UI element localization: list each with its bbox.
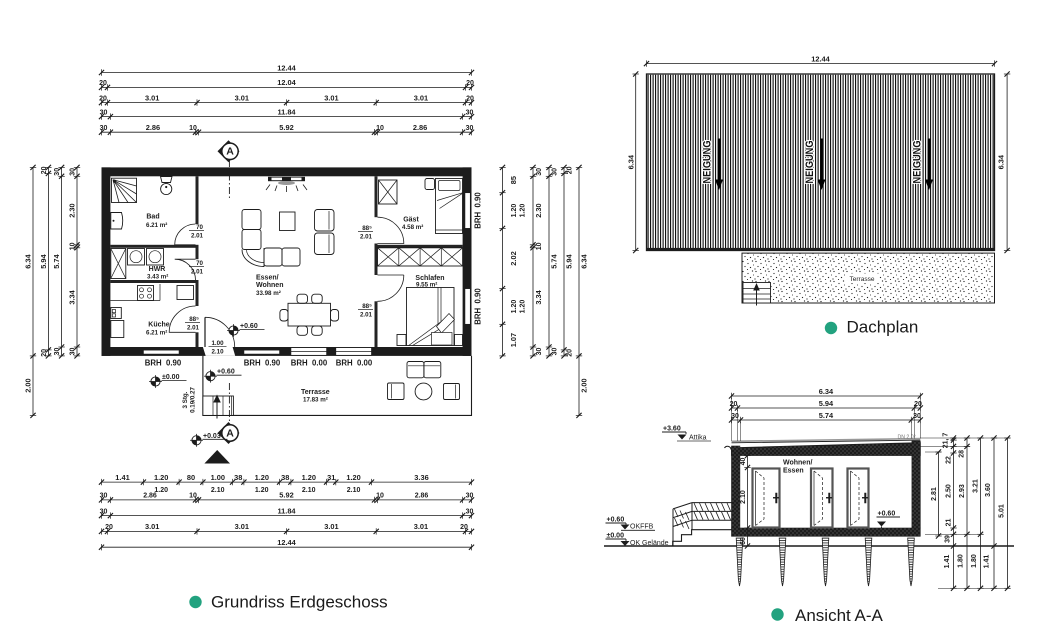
svg-text:3.34: 3.34: [534, 289, 543, 304]
svg-text:2.93: 2.93: [959, 484, 966, 498]
svg-text:NEIGUNG: NEIGUNG: [912, 141, 924, 184]
svg-text:30: 30: [552, 348, 559, 356]
svg-text:1.00: 1.00: [211, 340, 224, 347]
svg-text:60: 60: [740, 537, 747, 545]
svg-text:31: 31: [327, 473, 335, 482]
svg-text:10: 10: [189, 125, 197, 132]
svg-text:30: 30: [536, 348, 543, 356]
svg-text:1.20: 1.20: [154, 473, 168, 482]
svg-text:1.20: 1.20: [302, 473, 316, 482]
svg-text:3.01: 3.01: [324, 93, 338, 102]
svg-text:3.34: 3.34: [68, 289, 77, 304]
svg-text:3.01: 3.01: [145, 93, 159, 102]
svg-text:BRH 0.90: BRH 0.90: [145, 359, 182, 368]
svg-text:2.10: 2.10: [211, 487, 225, 494]
svg-text:3.01: 3.01: [145, 522, 159, 531]
svg-text:2.86: 2.86: [415, 493, 429, 500]
svg-text:12.44: 12.44: [811, 54, 830, 63]
svg-text:2.02: 2.02: [509, 251, 518, 265]
svg-text:1.80: 1.80: [971, 554, 978, 568]
svg-text:30: 30: [100, 508, 108, 515]
svg-text:Grundriss Erdgeschoss: Grundriss Erdgeschoss: [211, 593, 388, 612]
svg-text:20: 20: [460, 524, 468, 531]
svg-text:Wohnen/: Wohnen/: [783, 460, 812, 467]
svg-text:BRH 0.00: BRH 0.00: [336, 359, 373, 368]
svg-text:2.86: 2.86: [413, 123, 427, 132]
svg-text:21, 7: 21, 7: [943, 433, 950, 449]
svg-text:6.21 m²: 6.21 m²: [146, 222, 167, 229]
svg-text:6.34: 6.34: [819, 387, 834, 396]
svg-text:±0.00: ±0.00: [162, 374, 180, 381]
svg-text:5.74: 5.74: [52, 254, 61, 269]
svg-text:17.83 m²: 17.83 m²: [303, 397, 328, 404]
svg-text:30: 30: [54, 348, 61, 356]
svg-text:20: 20: [730, 401, 738, 408]
svg-text:12.04: 12.04: [277, 78, 296, 87]
svg-text:5.92: 5.92: [279, 123, 293, 132]
svg-text:A: A: [226, 427, 234, 439]
svg-text:39: 39: [945, 535, 952, 543]
svg-text:+0.60: +0.60: [607, 517, 625, 524]
svg-text:6.34: 6.34: [997, 154, 1006, 169]
svg-text:22: 22: [946, 456, 953, 464]
svg-text:2.00: 2.00: [580, 378, 589, 392]
svg-text:+0.60: +0.60: [217, 369, 235, 376]
svg-text:1.41: 1.41: [944, 555, 951, 569]
svg-text:80: 80: [187, 473, 195, 482]
svg-text:3.60: 3.60: [985, 483, 992, 497]
svg-text:A: A: [226, 146, 234, 158]
svg-text:10: 10: [536, 242, 543, 250]
svg-text:1.80: 1.80: [958, 554, 965, 568]
svg-text:5.94: 5.94: [819, 399, 834, 408]
svg-text:NEIGUNG: NEIGUNG: [702, 141, 714, 184]
svg-text:1.00: 1.00: [211, 473, 225, 482]
svg-text:Dachplan: Dachplan: [847, 318, 919, 337]
svg-text:6.34: 6.34: [626, 154, 635, 169]
svg-text:30: 30: [731, 413, 739, 420]
svg-text:Essen/: Essen/: [256, 275, 279, 282]
svg-text:20: 20: [41, 166, 48, 174]
svg-text:3.36: 3.36: [414, 473, 428, 482]
svg-text:HWR: HWR: [149, 266, 166, 273]
svg-text:30: 30: [466, 109, 474, 116]
svg-text:2.01: 2.01: [191, 233, 204, 240]
svg-text:BRH 0.90: BRH 0.90: [244, 359, 281, 368]
svg-text:3 Stg.: 3 Stg.: [182, 391, 189, 408]
svg-text:2.81: 2.81: [931, 487, 938, 501]
svg-text:38: 38: [234, 473, 242, 482]
svg-text:30: 30: [466, 508, 474, 515]
svg-text:5.92: 5.92: [279, 491, 293, 500]
svg-text:20: 20: [41, 349, 48, 357]
svg-text:BRH 0.90: BRH 0.90: [474, 288, 483, 325]
svg-text:12.44: 12.44: [277, 538, 296, 547]
svg-text:20: 20: [567, 166, 574, 174]
svg-text:2.01: 2.01: [360, 312, 373, 319]
svg-text:30: 30: [100, 125, 108, 132]
svg-text:2.01: 2.01: [360, 234, 373, 241]
svg-text:2.10: 2.10: [302, 487, 316, 494]
svg-text:30: 30: [552, 168, 559, 176]
svg-text:BRH 0.00: BRH 0.00: [291, 359, 328, 368]
svg-text:2.10: 2.10: [347, 487, 361, 494]
svg-text:DN 2,0°: DN 2,0°: [898, 435, 916, 441]
svg-text:1.20: 1.20: [520, 300, 527, 314]
svg-text:1.41: 1.41: [115, 473, 129, 482]
svg-text:85: 85: [509, 176, 518, 184]
svg-text:10: 10: [70, 242, 77, 250]
svg-text:20: 20: [567, 349, 574, 357]
svg-text:Wohnen: Wohnen: [256, 282, 283, 289]
svg-text:2.30: 2.30: [534, 203, 543, 217]
svg-text:Küche: Küche: [148, 322, 170, 329]
svg-text:2.30: 2.30: [68, 203, 77, 217]
svg-text:+0.60: +0.60: [878, 511, 896, 518]
svg-text:2.01: 2.01: [191, 269, 204, 276]
svg-text:Terrasse: Terrasse: [301, 389, 330, 396]
svg-text:2.10: 2.10: [740, 490, 747, 504]
svg-text:70: 70: [196, 260, 203, 267]
svg-text:Terrasse: Terrasse: [850, 276, 875, 283]
svg-text:2.10: 2.10: [211, 349, 224, 356]
svg-text:Gäst: Gäst: [403, 217, 419, 224]
svg-text:4.58 m²: 4.58 m²: [402, 224, 423, 231]
svg-text:6.21 m²: 6.21 m²: [146, 330, 167, 337]
svg-text:1.20: 1.20: [346, 473, 360, 482]
svg-text:20: 20: [99, 80, 107, 87]
svg-text:6.34: 6.34: [24, 254, 33, 269]
svg-text:20: 20: [99, 95, 107, 102]
svg-text:30: 30: [70, 348, 77, 356]
svg-text:30: 30: [466, 125, 474, 132]
svg-text:10: 10: [376, 493, 384, 500]
svg-text:OKFFB: OKFFB: [630, 524, 654, 531]
svg-text:88⁵: 88⁵: [362, 225, 372, 232]
svg-text:Bad: Bad: [146, 214, 159, 221]
svg-text:5.01: 5.01: [999, 504, 1006, 518]
svg-text:33.98 m²: 33.98 m²: [256, 290, 281, 297]
svg-text:5.74: 5.74: [550, 254, 559, 269]
svg-text:5.94: 5.94: [565, 254, 574, 269]
svg-text:+3.60: +3.60: [663, 426, 681, 433]
svg-text:+0.03: +0.03: [203, 433, 221, 440]
svg-text:40: 40: [740, 458, 747, 466]
svg-text:3.01: 3.01: [324, 522, 338, 531]
svg-text:3.01: 3.01: [235, 93, 249, 102]
svg-text:1.41: 1.41: [984, 555, 991, 569]
svg-text:30: 30: [100, 109, 108, 116]
svg-text:3.01: 3.01: [414, 93, 428, 102]
svg-text:12.44: 12.44: [277, 63, 296, 72]
svg-text:1.07: 1.07: [509, 333, 518, 347]
svg-text:10: 10: [189, 493, 197, 500]
svg-text:30: 30: [466, 493, 474, 500]
svg-text:11.84: 11.84: [277, 506, 296, 515]
svg-text:3.21: 3.21: [973, 479, 980, 493]
svg-text:20: 20: [105, 524, 113, 531]
svg-text:3.43 m²: 3.43 m²: [147, 274, 168, 281]
svg-text:1.20: 1.20: [255, 473, 269, 482]
svg-text:Essen: Essen: [783, 468, 804, 475]
svg-text:Ansicht A-A: Ansicht A-A: [795, 606, 884, 625]
svg-text:2.00: 2.00: [24, 378, 33, 392]
svg-text:2.50: 2.50: [946, 484, 953, 498]
svg-text:20: 20: [466, 80, 474, 87]
svg-text:9.55 m²: 9.55 m²: [416, 281, 437, 288]
svg-text:20: 20: [914, 401, 922, 408]
svg-text:21: 21: [946, 519, 953, 527]
svg-text:5.94: 5.94: [39, 254, 48, 269]
svg-text:OK Gelände: OK Gelände: [630, 540, 669, 547]
svg-text:2.86: 2.86: [146, 123, 160, 132]
svg-text:1.20: 1.20: [520, 204, 527, 218]
svg-text:28: 28: [959, 450, 966, 458]
svg-text:10: 10: [376, 125, 384, 132]
svg-text:+0.60: +0.60: [240, 323, 258, 330]
svg-text:3.01: 3.01: [235, 522, 249, 531]
svg-text:1.20: 1.20: [511, 204, 518, 218]
svg-text:2.86: 2.86: [143, 493, 157, 500]
svg-text:2.01: 2.01: [187, 325, 200, 332]
svg-text:NEIGUNG: NEIGUNG: [804, 141, 816, 184]
svg-text:1.20: 1.20: [511, 300, 518, 314]
svg-text:30: 30: [54, 168, 61, 176]
svg-text:1.20: 1.20: [255, 487, 269, 494]
svg-text:3.01: 3.01: [414, 522, 428, 531]
svg-text:6.34: 6.34: [580, 254, 589, 269]
svg-text:5.74: 5.74: [819, 411, 834, 420]
svg-text:30: 30: [100, 493, 108, 500]
svg-text:BRH 0.90: BRH 0.90: [474, 192, 483, 229]
svg-text:11.84: 11.84: [277, 107, 296, 116]
svg-text:88⁵: 88⁵: [362, 303, 372, 310]
svg-text:30: 30: [70, 168, 77, 176]
svg-text:0.19/0.27: 0.19/0.27: [190, 387, 197, 413]
svg-text:20: 20: [466, 95, 474, 102]
svg-text:±0.00: ±0.00: [607, 533, 625, 540]
svg-text:70: 70: [196, 224, 203, 231]
svg-text:38: 38: [281, 473, 289, 482]
svg-text:88⁵: 88⁵: [189, 316, 199, 323]
svg-text:30: 30: [536, 168, 543, 176]
